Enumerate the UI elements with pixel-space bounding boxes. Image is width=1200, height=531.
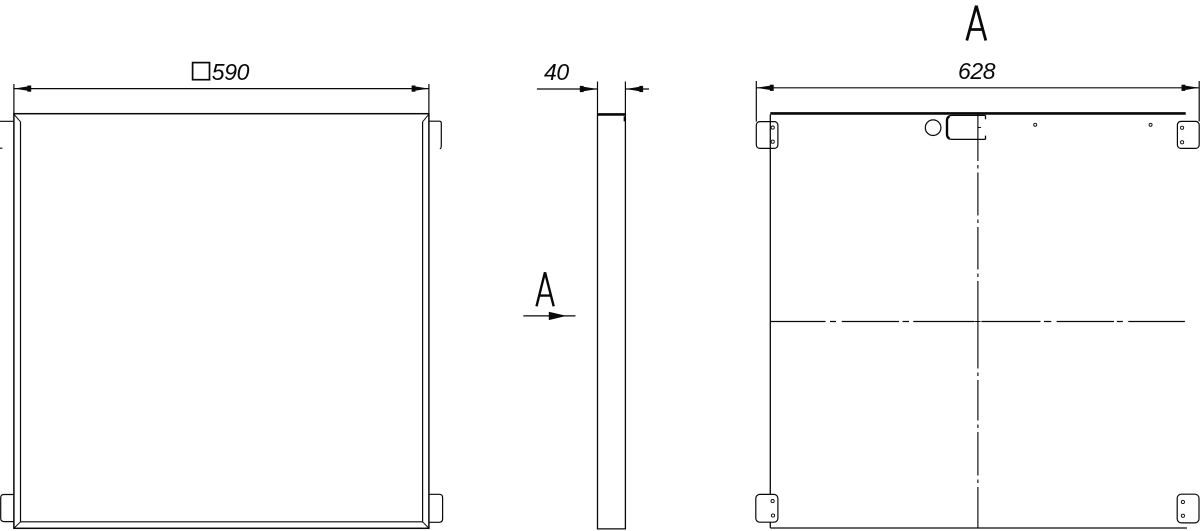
svg-text:40: 40	[544, 59, 569, 85]
svg-text:590: 590	[212, 59, 250, 85]
svg-text:628: 628	[958, 58, 996, 84]
